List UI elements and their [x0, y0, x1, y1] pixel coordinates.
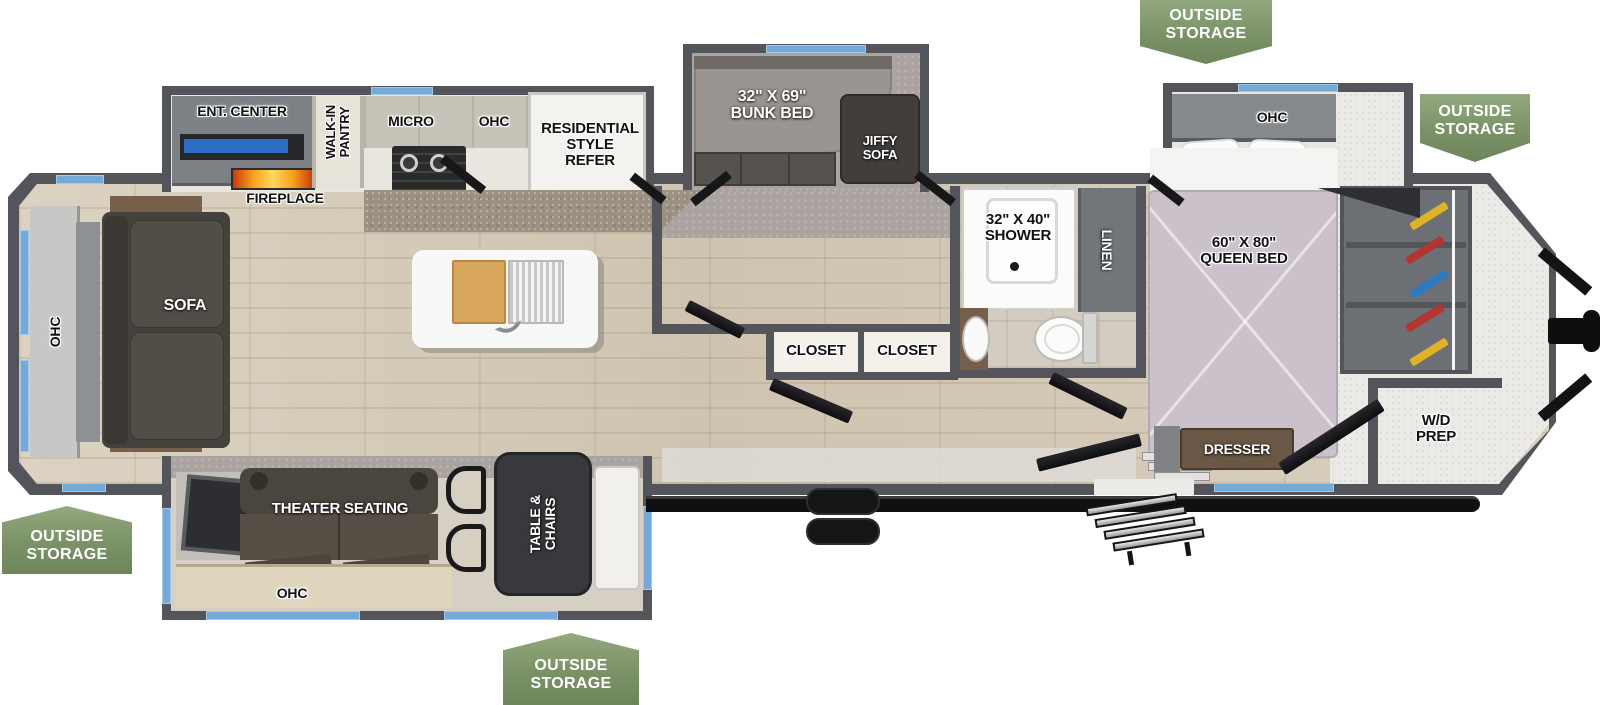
kitchen-counter	[364, 190, 654, 232]
tv-screen	[184, 139, 288, 153]
wardrobe-shelf	[1346, 242, 1466, 248]
label-queen-bed: 60" X 80" QUEEN BED	[1188, 232, 1300, 270]
bunk-bench-divider	[740, 152, 742, 186]
step-leg	[1184, 542, 1191, 557]
toilet-tank	[1082, 312, 1098, 364]
toilet-seat-line	[1044, 324, 1080, 354]
stove-burner-icon	[400, 154, 418, 172]
window-strip	[444, 611, 558, 620]
bath-right-wall	[1136, 186, 1146, 378]
sofa-cushion	[130, 332, 224, 440]
label-ohc-kitchen: OHC	[466, 112, 522, 130]
label-sofa: SOFA	[148, 296, 222, 316]
label-bunk-bed: 32" X 69" BUNK BED	[712, 88, 832, 124]
hanger-rod-icon	[1452, 190, 1455, 370]
sink-icon	[962, 316, 990, 362]
floorplan-canvas: OUTSIDE STORAGE OUTSIDE STORAGE OUTSIDE …	[0, 0, 1600, 705]
bunk-bench-divider	[788, 152, 790, 186]
window-strip	[1238, 84, 1338, 92]
window-strip	[643, 506, 652, 590]
label-micro: MICRO	[378, 112, 444, 130]
bunkroom-wall	[652, 186, 662, 332]
hitch-icon	[1583, 310, 1600, 352]
dining-chair-icon	[446, 524, 486, 572]
label-closet-1: CLOSET	[776, 342, 856, 360]
window-strip	[162, 508, 171, 604]
cutting-board-icon	[452, 260, 506, 324]
headrest-icon	[250, 472, 268, 490]
label-ent-center: ENT. CENTER	[178, 102, 306, 120]
wardrobe-shelf	[1346, 302, 1466, 308]
wd-prep-top-wall	[1368, 378, 1502, 388]
queen-bed	[1148, 190, 1338, 458]
window-strip	[62, 483, 106, 492]
window-strip	[56, 175, 104, 184]
badge-outside-storage: OUTSIDE STORAGE	[503, 633, 639, 705]
hitch-icon	[1548, 318, 1588, 344]
label-wd-prep: W/D PREP	[1396, 410, 1476, 448]
window-strip	[1214, 483, 1334, 492]
badge-outside-storage: OUTSIDE STORAGE	[1140, 0, 1272, 64]
label-refer: RESIDENTIAL STYLE REFER	[540, 116, 640, 174]
label-shower: 32" X 40" SHOWER	[966, 210, 1070, 246]
bedroom-slide-wall	[1336, 92, 1404, 192]
shower-drain-icon	[1010, 262, 1019, 271]
label-ohc-rear: OHC	[45, 302, 65, 362]
queen-bed-sheet	[1150, 148, 1338, 194]
bath-left-wall	[950, 186, 960, 378]
step-leg	[1127, 551, 1134, 566]
window-strip	[20, 360, 29, 452]
window-strip	[206, 611, 360, 620]
label-fireplace: FIREPLACE	[237, 190, 333, 206]
chassis-rail	[646, 496, 1480, 512]
label-theater-seating: THEATER SEATING	[248, 500, 432, 518]
bunk-headboard	[694, 56, 892, 69]
sink-cover-icon	[508, 260, 564, 324]
nightstand	[1154, 426, 1180, 472]
badge-outside-storage: OUTSIDE STORAGE	[2, 506, 132, 574]
label-walk-in-pantry: WALK-IN PANTRY	[321, 90, 355, 174]
bunkroom-bottom-wall	[652, 324, 766, 334]
label-table-chairs: TABLE & CHAIRS	[525, 469, 561, 579]
theater-cushion-divider	[338, 514, 340, 560]
bench-seat	[594, 466, 640, 590]
headrest-icon	[410, 472, 428, 490]
label-ohc-theater: OHC	[266, 584, 318, 602]
label-closet-2: CLOSET	[866, 342, 948, 360]
dining-chair-icon	[446, 466, 486, 514]
sofa-backrest	[104, 216, 128, 444]
tires-icon	[806, 518, 880, 545]
badge-outside-storage: OUTSIDE STORAGE	[1420, 94, 1530, 162]
tires-icon	[806, 488, 880, 515]
window-strip	[766, 45, 866, 53]
rear-tv-panel	[76, 222, 100, 442]
label-linen: LINEN	[1098, 215, 1116, 285]
label-ohc-bedroom: OHC	[1246, 108, 1298, 126]
label-dresser: DRESSER	[1190, 440, 1284, 458]
window-strip	[371, 87, 433, 95]
fireplace-flame-icon	[231, 168, 315, 190]
window-strip	[20, 230, 29, 335]
label-jiffy-sofa: JIFFY SOFA	[846, 132, 914, 164]
